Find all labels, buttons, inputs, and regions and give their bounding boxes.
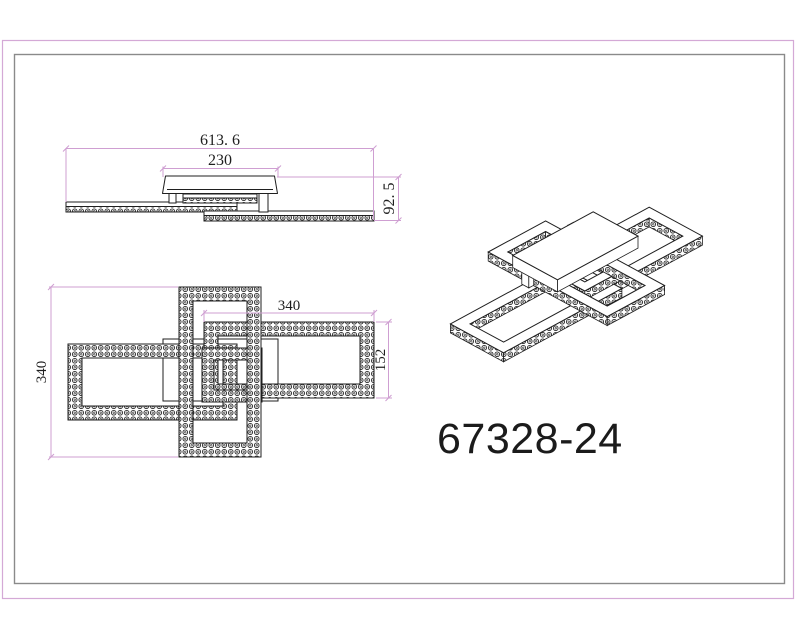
inner-page-border — [15, 55, 785, 584]
technical-drawing-canvas: 613. 6 230 92. 5 — [0, 0, 800, 640]
product-code: 67328-24 — [437, 415, 623, 463]
dim-right-frame-width-label: 152 — [373, 349, 389, 372]
top-view: 340 340 152 — [34, 284, 392, 460]
dimension-right-frame-width: 152 — [373, 319, 392, 401]
side-view-center-frame — [183, 194, 257, 203]
dim-tall-frame-length-label: 340 — [34, 361, 50, 384]
iso-view — [450, 207, 702, 362]
dimension-right-frame-length: 340 — [201, 298, 377, 322]
dim-right-frame-length-label: 340 — [278, 298, 301, 314]
dim-overall-width-label: 613. 6 — [200, 132, 240, 149]
dim-canopy-width-label: 230 — [208, 152, 232, 169]
dimension-canopy-width: 230 — [160, 152, 281, 177]
outer-page-border — [3, 41, 794, 599]
side-view: 613. 6 230 92. 5 — [63, 132, 402, 224]
dimension-tall-frame-length: 340 — [34, 284, 178, 460]
side-view-left-post — [169, 193, 176, 203]
drawing-sheet: 613. 6 230 92. 5 — [0, 0, 800, 640]
dim-fixture-height-label: 92. 5 — [381, 183, 398, 215]
side-view-canopy — [163, 176, 278, 194]
side-view-right-bar — [204, 211, 374, 221]
side-view-right-post — [259, 193, 268, 212]
